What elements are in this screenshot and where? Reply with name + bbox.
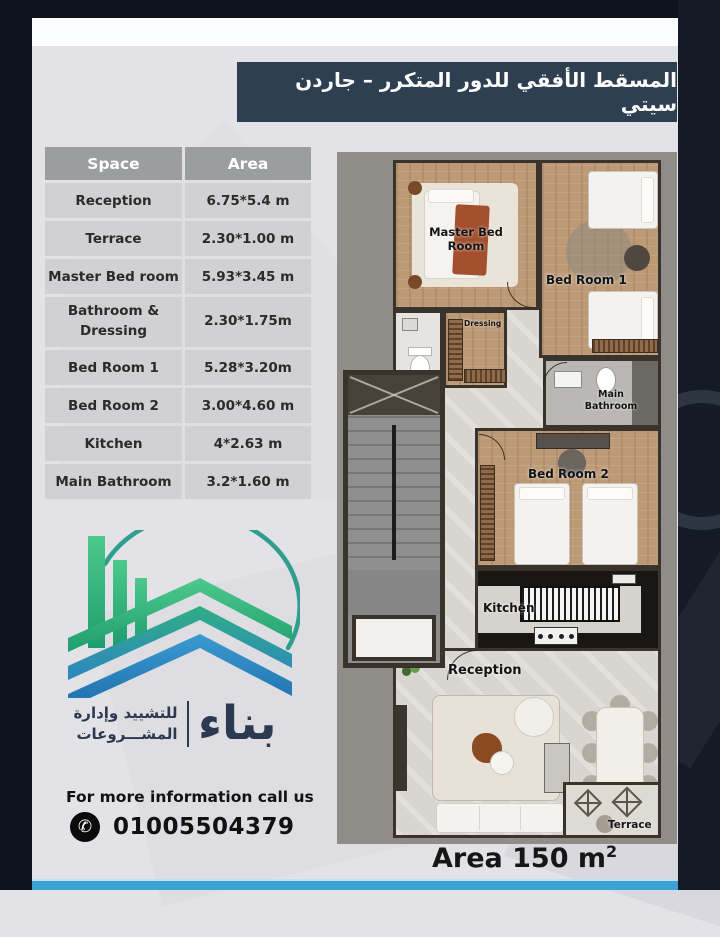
table-row: Bed Room 1 5.28*3.20m [45, 350, 311, 385]
bed-pillow [519, 487, 565, 500]
wardrobe [464, 369, 506, 383]
room-bedroom-1: Bed Room 1 [539, 160, 661, 358]
table-row: Terrace 2.30*1.00 m [45, 221, 311, 256]
frame-watermark-slab [678, 551, 720, 768]
bottom-blue-strip [32, 879, 720, 890]
elevator [352, 615, 436, 661]
table-body: Reception 6.75*5.4 m Terrace 2.30*1.00 m… [45, 183, 311, 499]
logo-text-row: للتشييد وإدارةالمشـــروعات بناء [40, 700, 310, 747]
cell-space: Terrace [45, 221, 182, 256]
plant [402, 667, 411, 676]
phone-number: 01005504379 [113, 814, 295, 840]
coffee-table [490, 751, 514, 775]
table-header-area: Area [185, 147, 311, 180]
bed [588, 171, 658, 229]
duct-shaft [348, 375, 440, 415]
stair-landing [348, 570, 440, 615]
kitchen-sink [612, 574, 636, 584]
total-area-label: Area 150 m2 [432, 842, 617, 874]
space-area-table: Space Area Reception 6.75*5.4 m Terrace … [45, 147, 311, 499]
wardrobe [448, 319, 463, 381]
room-kitchen: Kitchen [475, 568, 661, 652]
contact-phone-row: ✆ 01005504379 [70, 812, 295, 842]
cell-space: Master Bed room [45, 259, 182, 294]
brand-tagline: للتشييد وإدارةالمشـــروعات [73, 703, 177, 745]
cell-area: 6.75*5.4 m [185, 183, 311, 218]
phone-icon: ✆ [70, 812, 100, 842]
room-terrace: Terrace [563, 782, 661, 838]
right-frame-bar [678, 0, 720, 890]
bed [582, 483, 638, 565]
geometric-planter [611, 786, 642, 817]
contact-info-text: For more information call us [66, 788, 314, 806]
counter-side [641, 571, 658, 649]
cell-area: 3.00*4.60 m [185, 388, 311, 423]
brand-divider [187, 701, 190, 747]
brand-name: بناء [198, 700, 277, 747]
cell-area: 4*2.63 m [185, 426, 311, 461]
nightstand [408, 275, 422, 289]
table-row: Master Bed room 5.93*3.45 m [45, 259, 311, 294]
shaft-x-icon [348, 375, 440, 415]
frame-watermark-ring [678, 390, 720, 530]
sink [402, 318, 418, 331]
staircase [348, 415, 440, 570]
table-header-space: Space [45, 147, 182, 180]
title-banner-text: المسقط الأفقي للدور المتكرر – جاردن سيتي [237, 68, 677, 116]
table-row: Reception 6.75*5.4 m [45, 183, 311, 218]
stool [624, 245, 650, 271]
room-label-bed1: Bed Room 1 [546, 273, 627, 288]
bed-pillow [641, 177, 654, 223]
room-label-reception: Reception [448, 663, 522, 679]
round-table [514, 697, 554, 737]
stair-core [343, 370, 445, 668]
table-header-row: Space Area [45, 147, 311, 180]
room-dressing: Dressing [443, 310, 507, 388]
cell-area: 5.93*3.45 m [185, 259, 311, 294]
geometric-planter [574, 789, 602, 817]
stove [534, 627, 578, 645]
cell-area: 2.30*1.75m [185, 297, 311, 347]
cell-area: 5.28*3.20m [185, 350, 311, 385]
company-logo: للتشييد وإدارةالمشـــروعات بناء [40, 530, 310, 747]
cell-area: 2.30*1.00 m [185, 221, 311, 256]
title-banner: المسقط الأفقي للدور المتكرر – جاردن سيتي [237, 62, 677, 122]
table-row: Main Bathroom 3.2*1.60 m [45, 464, 311, 499]
room-label-terrace: Terrace [608, 819, 652, 832]
table-row: Bathroom & Dressing 2.30*1.75m [45, 297, 311, 347]
top-frame-bar [32, 0, 720, 18]
table-row: Bed Room 2 3.00*4.60 m [45, 388, 311, 423]
bed-pillow [641, 297, 654, 343]
tv-unit [396, 705, 407, 791]
sofa [436, 803, 564, 833]
cell-space: Main Bathroom [45, 464, 182, 499]
cell-area: 3.2*1.60 m [185, 464, 311, 499]
top-white-strip [32, 18, 720, 46]
room-label-main-bath: Main Bathroom [576, 389, 646, 413]
floorplan: Master Bed Room Bed Room 1 Dressing Main… [337, 152, 677, 844]
wardrobe [592, 339, 658, 353]
bed-pillow [587, 487, 633, 500]
cell-space: Bed Room 1 [45, 350, 182, 385]
nightstand [408, 181, 422, 195]
cell-space: Bathroom & Dressing [45, 297, 182, 347]
kitchen-appliance-grid [520, 586, 620, 622]
table-row: Kitchen 4*2.63 m [45, 426, 311, 461]
room-label-bed2: Bed Room 2 [528, 467, 609, 482]
room-label-dressing: Dressing [464, 319, 501, 328]
cell-space: Bed Room 2 [45, 388, 182, 423]
room-label-kitchen: Kitchen [483, 601, 535, 616]
logo-building-icon [50, 530, 300, 698]
wardrobe [480, 465, 495, 561]
room-label-master: Master Bed Room [396, 225, 536, 254]
bed-pillow [428, 189, 474, 203]
left-frame-bar [0, 0, 32, 890]
cell-space: Kitchen [45, 426, 182, 461]
cell-space: Reception [45, 183, 182, 218]
headboard-unit [536, 433, 610, 449]
bed [514, 483, 570, 565]
